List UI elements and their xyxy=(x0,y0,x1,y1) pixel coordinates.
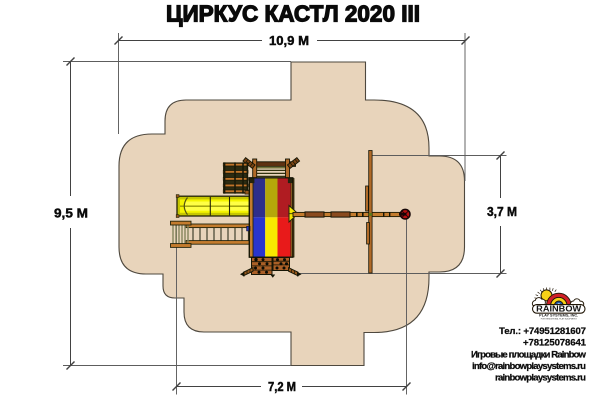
svg-text:9,5 М: 9,5 М xyxy=(54,207,88,221)
svg-text:10,9 М: 10,9 М xyxy=(269,34,309,48)
svg-text:Тел.: +74951281607: Тел.: +74951281607 xyxy=(499,326,586,337)
svg-text:7,2 М: 7,2 М xyxy=(268,380,296,394)
svg-text:info@rainbowplaysystems.ru: info@rainbowplaysystems.ru xyxy=(472,361,586,372)
svg-text:+78125078641: +78125078641 xyxy=(523,338,587,349)
svg-text:RAINBOW: RAINBOW xyxy=(536,305,582,314)
svg-text:rainbowplaysystems.ru: rainbowplaysystems.ru xyxy=(495,372,586,383)
svg-text:Игровые площадки Rainbow: Игровые площадки Rainbow xyxy=(471,349,587,360)
svg-text:FOR RESIDENTIAL PLAY EQUIPMENT: FOR RESIDENTIAL PLAY EQUIPMENT xyxy=(541,317,578,320)
svg-text:ЦИРКУС КАСТЛ 2020 III: ЦИРКУС КАСТЛ 2020 III xyxy=(166,1,420,27)
svg-text:3,7 М: 3,7 М xyxy=(487,205,517,219)
svg-text:PLAY SYSTEMS, INC.: PLAY SYSTEMS, INC. xyxy=(539,314,578,318)
